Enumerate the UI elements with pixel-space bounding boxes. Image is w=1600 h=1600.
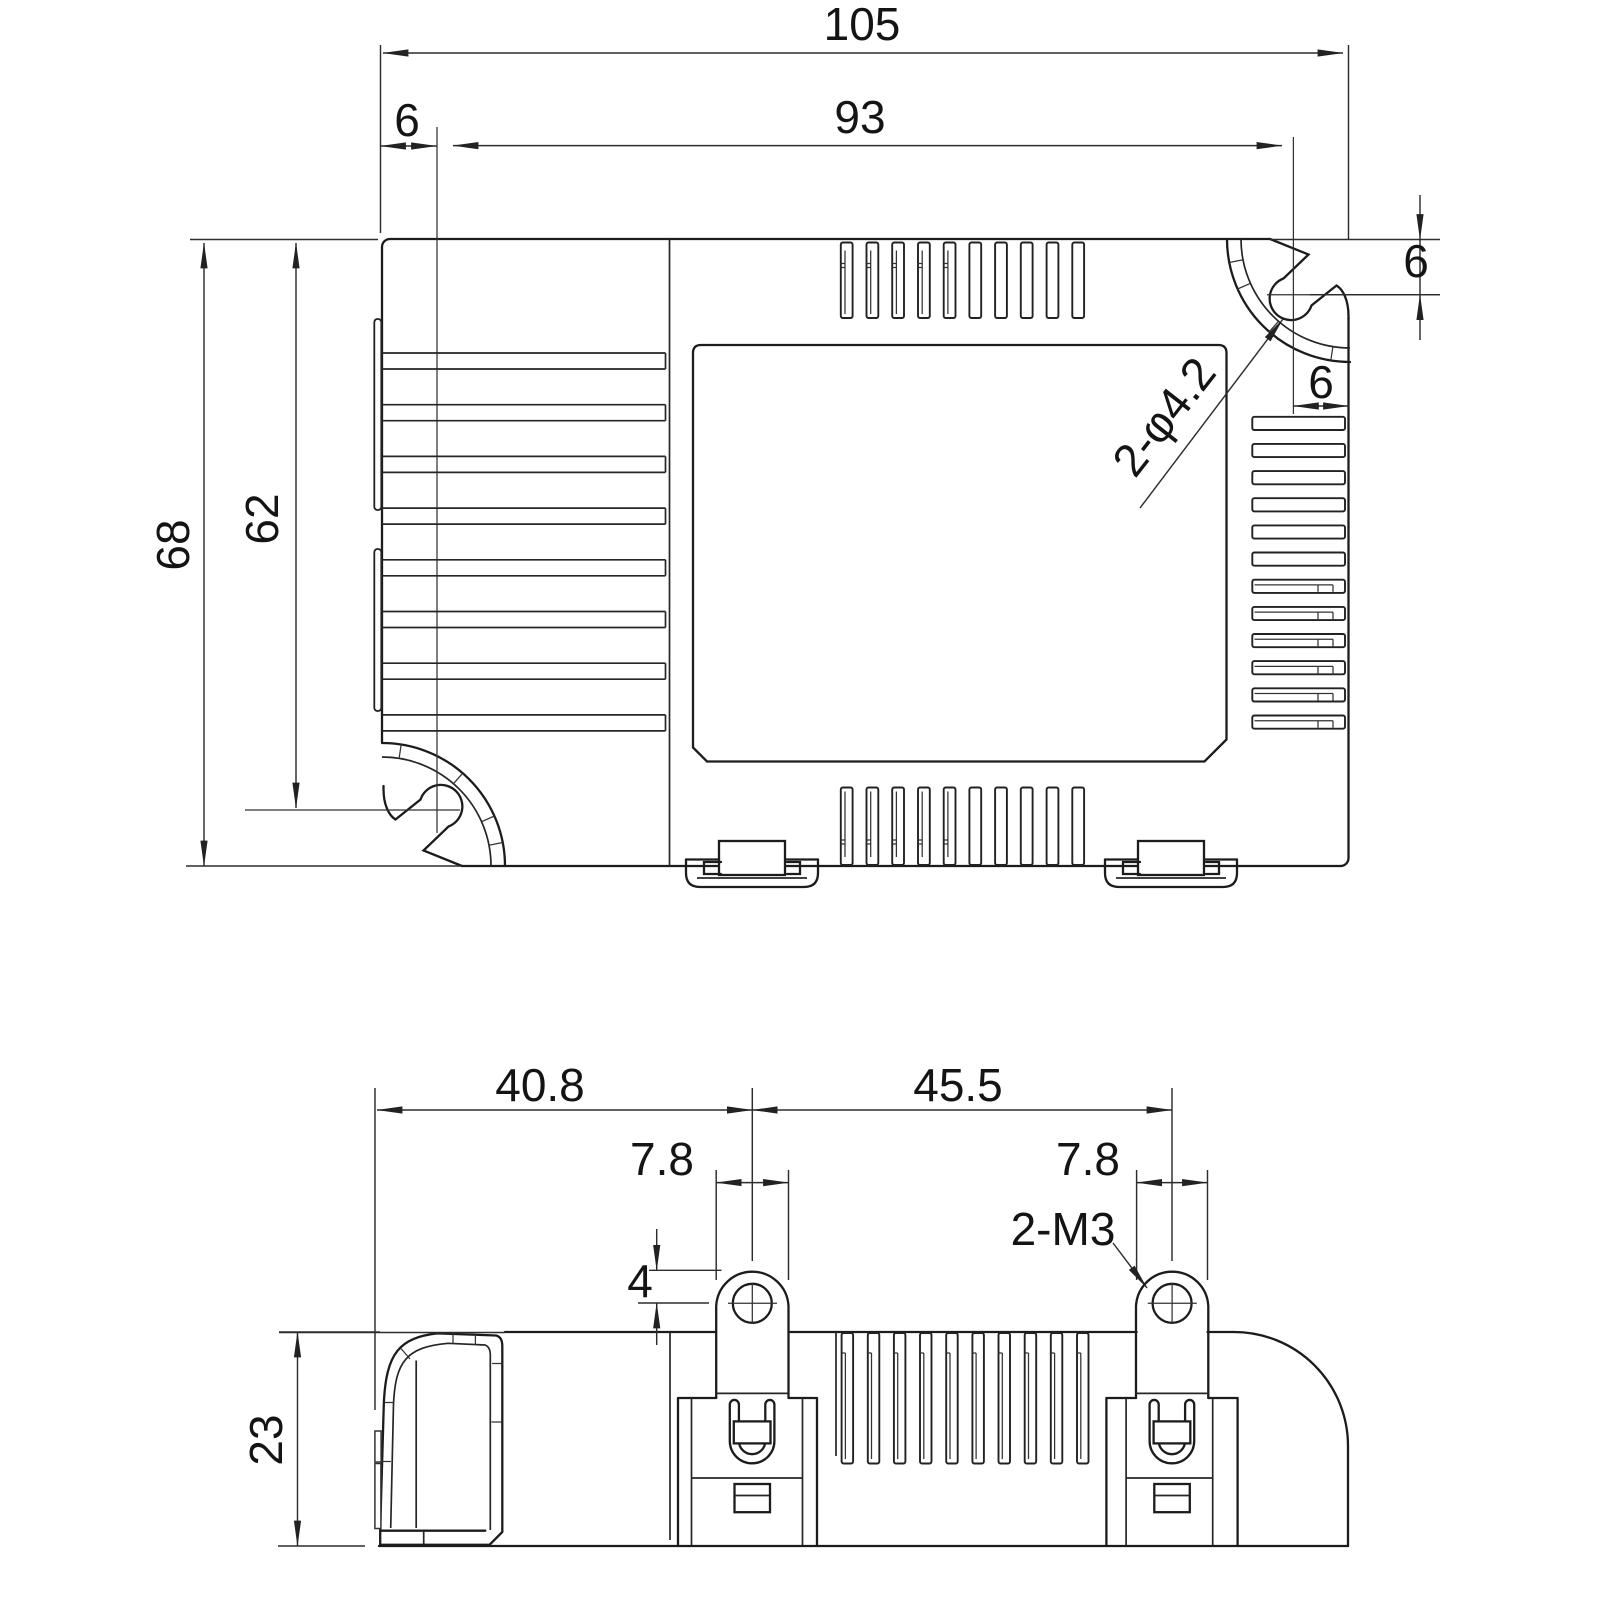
- svg-text:6: 6: [394, 94, 420, 146]
- svg-text:68: 68: [147, 519, 199, 570]
- svg-text:93: 93: [834, 91, 885, 143]
- svg-text:6: 6: [1308, 356, 1334, 408]
- svg-text:62: 62: [236, 493, 288, 544]
- svg-text:2-φ4.2: 2-φ4.2: [1102, 347, 1226, 485]
- svg-text:2-M3: 2-M3: [1011, 1203, 1116, 1255]
- svg-text:40.8: 40.8: [495, 1059, 585, 1111]
- svg-text:45.5: 45.5: [913, 1059, 1003, 1111]
- svg-text:7.8: 7.8: [630, 1133, 694, 1185]
- svg-text:23: 23: [240, 1414, 292, 1465]
- svg-text:7.8: 7.8: [1056, 1133, 1120, 1185]
- svg-text:6: 6: [1403, 235, 1429, 287]
- svg-text:105: 105: [824, 0, 901, 50]
- svg-text:4: 4: [627, 1255, 653, 1307]
